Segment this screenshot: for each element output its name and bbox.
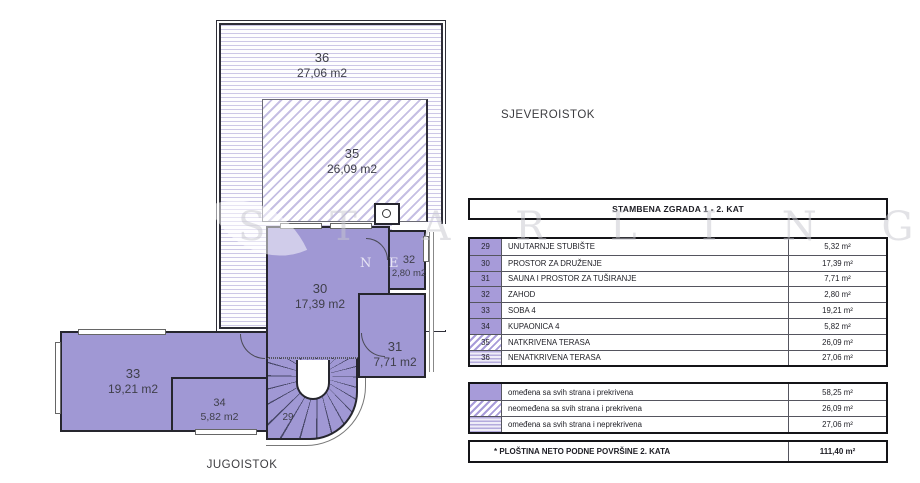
room-label-34: 34 5,82 m2	[172, 397, 267, 424]
row-number-swatch: 34	[470, 319, 502, 334]
window	[195, 429, 257, 435]
room-number: 35	[292, 146, 412, 162]
row-name: UNUTARNJE STUBIŠTE	[502, 239, 788, 255]
room-number: 33	[73, 366, 193, 382]
row-name: NENATKRIVENA TERASA	[502, 351, 788, 366]
total-row: * PLOŠTINA NETO PODNE POVRŠINE 2. KATA 1…	[468, 440, 888, 463]
row-area: 27,06 m²	[788, 417, 886, 432]
table-row: neomeđena sa svih strana i prekrivena 26…	[470, 400, 886, 416]
table-title: STAMBENA ZGRADA 1 - 2. KAT	[468, 198, 888, 220]
window	[78, 329, 166, 335]
table-row: 34 KUPAONICA 4 5,82 m²	[470, 318, 886, 334]
row-number-swatch: 31	[470, 272, 502, 287]
table-row: 30 PROSTOR ZA DRUŽENJE 17,39 m²	[470, 255, 886, 271]
legend-swatch	[470, 384, 502, 400]
hall-boundary-dotted-line	[268, 357, 358, 358]
row-area: 26,09 m²	[788, 335, 886, 350]
room-area: 17,39 m2	[260, 297, 380, 312]
total-area: 111,40 m²	[788, 442, 886, 461]
row-number-swatch: 33	[470, 303, 502, 318]
table-row: 35 NATKRIVENA TERASA 26,09 m²	[470, 334, 886, 350]
row-number-swatch: 35	[470, 335, 502, 350]
legend-table: omeđena sa svih strana i prekrivena 58,2…	[468, 382, 888, 433]
chimney-shaft	[374, 203, 400, 225]
table-row: omeđena sa svih strana i neprekrivena 27…	[470, 416, 886, 432]
row-area: 5,32 m²	[788, 239, 886, 255]
row-number-swatch: 30	[470, 256, 502, 271]
row-area: 2,80 m²	[788, 287, 886, 302]
row-name: PROSTOR ZA DRUŽENJE	[502, 256, 788, 271]
room-area: 7,71 m2	[350, 355, 440, 370]
legend-swatch	[470, 401, 502, 416]
row-name: SOBA 4	[502, 303, 788, 318]
window	[55, 342, 61, 414]
row-area: 58,25 m²	[788, 384, 886, 400]
row-area: 26,09 m²	[788, 401, 886, 416]
floor-plan-page: { "compass": { "northeast": "SJEVEROISTO…	[0, 0, 920, 483]
room-label-31: 31 7,71 m2	[350, 339, 440, 370]
room-area: 27,06 m2	[262, 66, 382, 81]
window	[330, 223, 372, 229]
compass-label-northeast: SJEVEROISTOK	[493, 109, 603, 121]
table-row: 29 UNUTARNJE STUBIŠTE 5,32 m²	[470, 239, 886, 255]
table-row: 36 NENATKRIVENA TERASA 27,06 m²	[470, 350, 886, 366]
window	[280, 223, 322, 229]
room-area: 2,80 m2	[379, 268, 439, 280]
row-area: 27,06 m²	[788, 351, 886, 366]
total-label: * PLOŠTINA NETO PODNE POVRŠINE 2. KATA	[470, 442, 788, 461]
area-table: STAMBENA ZGRADA 1 - 2. KAT 29 UNUTARNJE …	[468, 198, 888, 463]
row-area: 7,71 m²	[788, 272, 886, 287]
row-area: 19,21 m²	[788, 303, 886, 318]
row-name: SAUNA I PROSTOR ZA TUŠIRANJE	[502, 272, 788, 287]
table-row: omeđena sa svih strana i prekrivena 58,2…	[470, 384, 886, 400]
room-area: 26,09 m2	[292, 162, 412, 177]
row-name: neomeđena sa svih strana i prekrivena	[502, 401, 788, 416]
staircase-void	[296, 360, 330, 400]
row-name: omeđena sa svih strana i neprekrivena	[502, 417, 788, 432]
row-name: omeđena sa svih strana i prekrivena	[502, 384, 788, 400]
room-number: 29	[274, 412, 302, 425]
row-name: KUPAONICA 4	[502, 319, 788, 334]
compass-label-southeast: JUGOISTOK	[192, 459, 292, 471]
table-row: 32 ZAHOD 2,80 m²	[470, 286, 886, 302]
row-number-swatch: 36	[470, 351, 502, 366]
room-number: 31	[350, 339, 440, 355]
row-area: 5,82 m²	[788, 319, 886, 334]
room-label-32: 32 2,80 m2	[379, 254, 439, 280]
row-number-swatch: 32	[470, 287, 502, 302]
row-area: 17,39 m²	[788, 256, 886, 271]
chimney-flue-icon	[382, 209, 391, 218]
row-name: NATKRIVENA TERASA	[502, 335, 788, 350]
table-row: 33 SOBA 4 19,21 m²	[470, 302, 886, 318]
room-number: 34	[172, 397, 267, 411]
row-number-swatch: 29	[470, 239, 502, 255]
room-label-35: 35 26,09 m2	[292, 146, 412, 177]
room-label-30: 30 17,39 m2	[260, 281, 380, 312]
room-number: 32	[379, 254, 439, 268]
legend-swatch	[470, 417, 502, 432]
room-label-33: 33 19,21 m2	[73, 366, 193, 397]
room-number: 36	[262, 50, 382, 66]
room-label-29: 29	[274, 412, 302, 425]
room-list-table: 29 UNUTARNJE STUBIŠTE 5,32 m² 30 PROSTOR…	[468, 237, 888, 367]
table-row: 31 SAUNA I PROSTOR ZA TUŠIRANJE 7,71 m²	[470, 271, 886, 287]
row-name: ZAHOD	[502, 287, 788, 302]
room-number: 30	[260, 281, 380, 297]
room-label-36: 36 27,06 m2	[262, 50, 382, 81]
room-area: 19,21 m2	[73, 382, 193, 397]
room-area: 5,82 m2	[172, 411, 267, 424]
